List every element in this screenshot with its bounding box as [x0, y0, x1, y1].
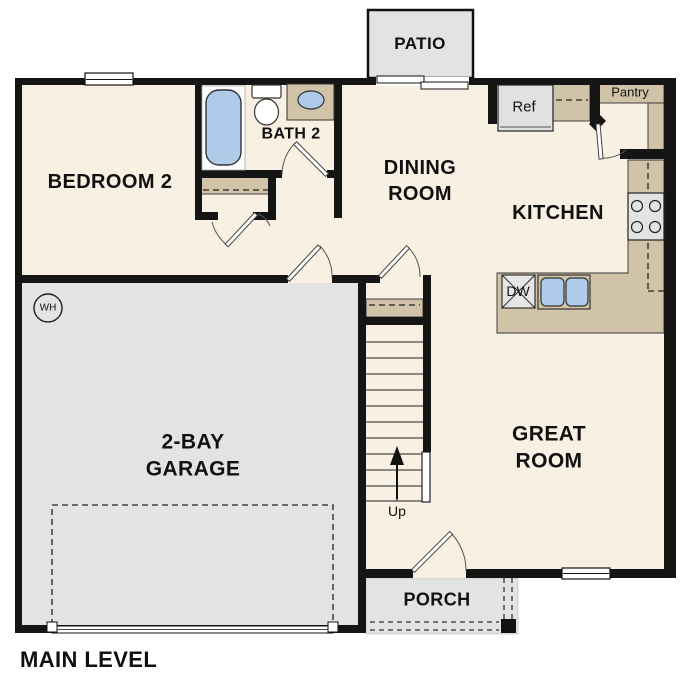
- ref-label: Ref: [512, 97, 535, 117]
- patio-label: PATIO: [394, 33, 445, 55]
- bedroom-window: [85, 73, 133, 85]
- front-door-opening: [413, 569, 466, 578]
- pantry-shelf-side: [648, 103, 664, 152]
- dining-room-label: DINING ROOM: [384, 155, 456, 207]
- porch-label: PORCH: [403, 588, 470, 611]
- great-room-label: GREAT ROOM: [512, 421, 586, 476]
- kitchen-label: KITCHEN: [512, 200, 604, 226]
- plan-title: MAIN LEVEL: [20, 646, 157, 675]
- pantry-label: Pantry: [611, 85, 649, 102]
- wh-label: WH: [40, 302, 57, 315]
- bathtub: [206, 90, 241, 165]
- bedroom2-label: BEDROOM 2: [48, 169, 173, 195]
- bath-sink: [287, 84, 334, 120]
- up-label: Up: [388, 502, 406, 520]
- stair-closet-shelf: [366, 299, 423, 317]
- porch-column: [501, 619, 516, 633]
- bath2-label: BATH 2: [262, 125, 321, 146]
- ref-counter: [553, 84, 590, 121]
- bedroom-closet-shelf: [201, 177, 270, 194]
- floor-plan: PATIO BEDROOM 2 BATH 2 DINING ROOM KITCH…: [0, 0, 687, 687]
- stove: [628, 193, 664, 240]
- great-room-window: [562, 568, 610, 579]
- toilet: [252, 85, 281, 125]
- dw-label: DW: [506, 282, 529, 300]
- stair-handrail: [422, 452, 430, 502]
- garage-label: 2-BAY GARAGE: [146, 429, 241, 484]
- floor-plan-drawing: [0, 0, 687, 687]
